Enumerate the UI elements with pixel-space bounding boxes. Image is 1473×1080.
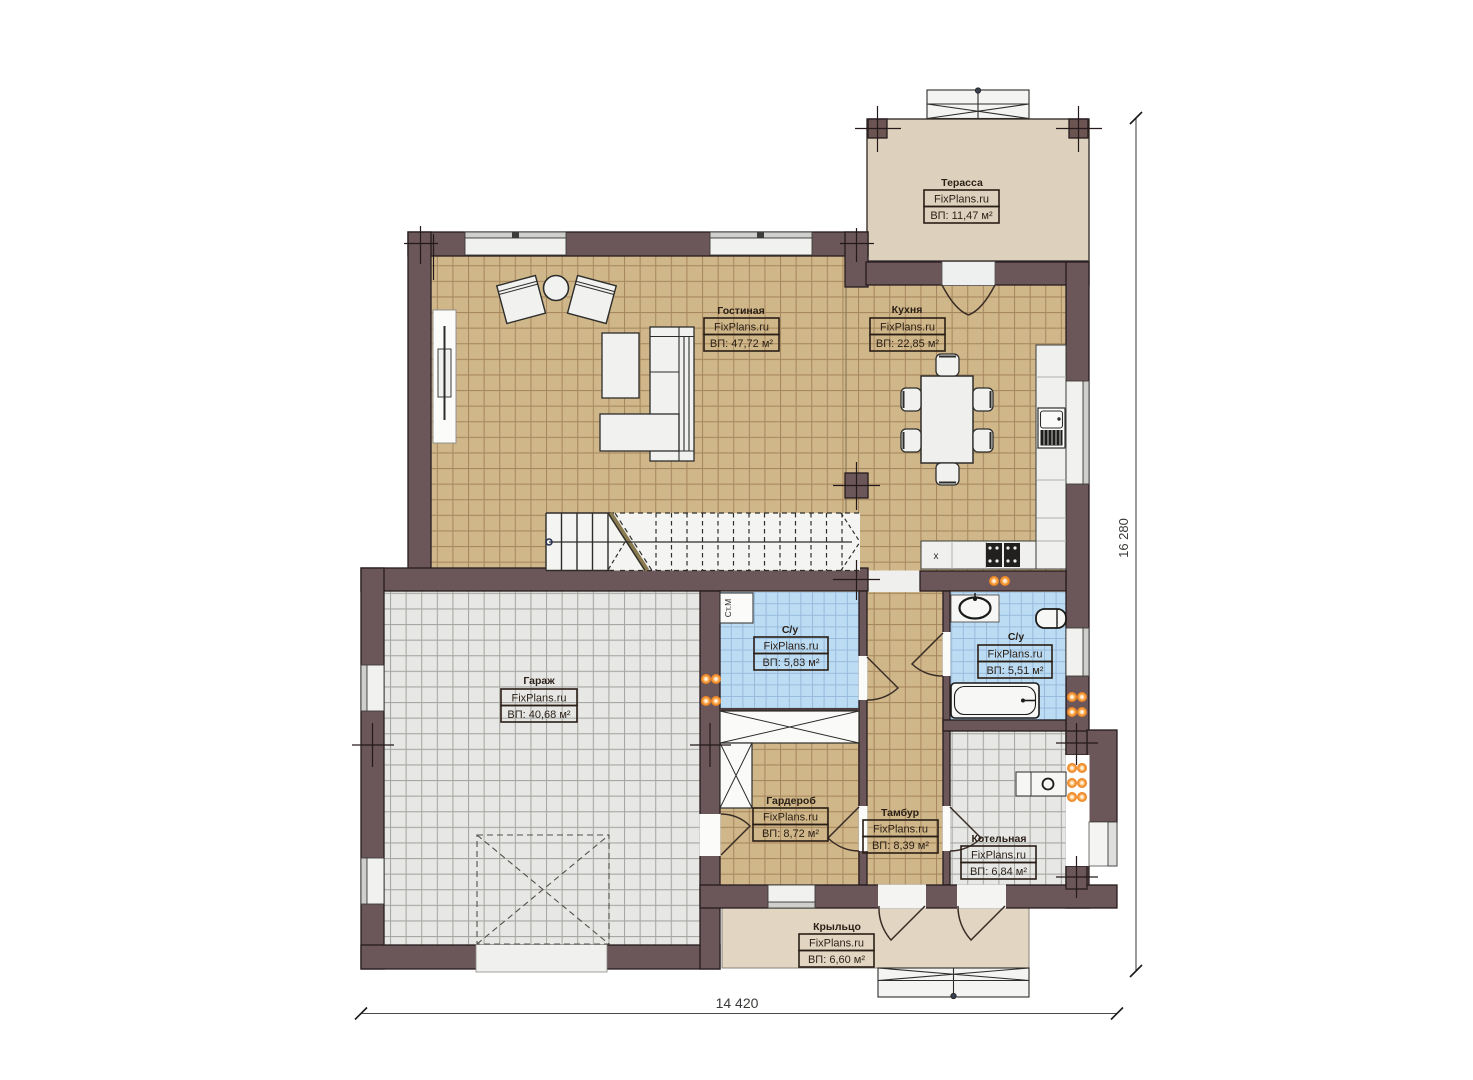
svg-text:Ст.М: Ст.М <box>723 599 733 618</box>
svg-text:FixPlans.ru: FixPlans.ru <box>873 824 928 836</box>
svg-text:Гардероб: Гардероб <box>766 795 816 807</box>
svg-text:FixPlans.ru: FixPlans.ru <box>763 641 818 653</box>
svg-text:x: x <box>934 551 939 562</box>
svg-text:ВП: 11,47 м²: ВП: 11,47 м² <box>930 210 993 222</box>
svg-text:ВП: 6,60 м²: ВП: 6,60 м² <box>808 954 865 966</box>
svg-text:Крыльцо: Крыльцо <box>813 921 861 933</box>
svg-text:Гостиная: Гостиная <box>717 305 764 317</box>
svg-text:С/у: С/у <box>782 624 799 636</box>
svg-text:Тамбур: Тамбур <box>881 807 919 819</box>
svg-text:ВП: 8,72 м²: ВП: 8,72 м² <box>762 828 819 840</box>
svg-text:FixPlans.ru: FixPlans.ru <box>880 322 935 334</box>
svg-text:16 280: 16 280 <box>1116 518 1131 558</box>
svg-text:ВП: 5,51 м²: ВП: 5,51 м² <box>986 665 1043 677</box>
svg-text:ВП: 22,85 м²: ВП: 22,85 м² <box>876 338 940 350</box>
svg-text:FixPlans.ru: FixPlans.ru <box>763 812 818 824</box>
svg-text:ВП: 8,39 м²: ВП: 8,39 м² <box>872 840 929 852</box>
svg-text:FixPlans.ru: FixPlans.ru <box>934 194 989 206</box>
svg-text:Котельная: Котельная <box>972 833 1027 845</box>
svg-text:С/у: С/у <box>1008 631 1025 643</box>
svg-text:FixPlans.ru: FixPlans.ru <box>809 938 864 950</box>
svg-text:ВП: 6,84 м²: ВП: 6,84 м² <box>970 866 1027 878</box>
svg-text:FixPlans.ru: FixPlans.ru <box>987 649 1042 661</box>
svg-text:FixPlans.ru: FixPlans.ru <box>511 693 566 705</box>
svg-text:ВП: 40,68 м²: ВП: 40,68 м² <box>507 709 571 721</box>
svg-text:Терасса: Терасса <box>941 177 983 189</box>
svg-text:Кухня: Кухня <box>892 304 923 316</box>
svg-text:Гараж: Гараж <box>523 675 555 687</box>
svg-text:ВП: 47,72 м²: ВП: 47,72 м² <box>710 338 774 350</box>
svg-text:FixPlans.ru: FixPlans.ru <box>971 850 1026 862</box>
svg-text:14 420: 14 420 <box>716 995 759 1011</box>
svg-text:FixPlans.ru: FixPlans.ru <box>714 322 769 334</box>
svg-text:ВП: 5,83 м²: ВП: 5,83 м² <box>762 657 819 669</box>
